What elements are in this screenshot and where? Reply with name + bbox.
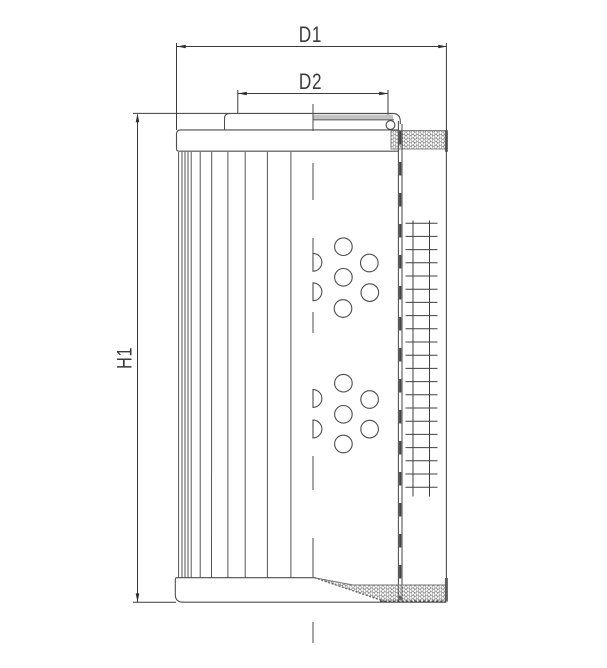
svg-text:D2: D2 xyxy=(299,70,322,95)
svg-text:D1: D1 xyxy=(299,23,322,48)
svg-text:H1: H1 xyxy=(112,347,135,370)
